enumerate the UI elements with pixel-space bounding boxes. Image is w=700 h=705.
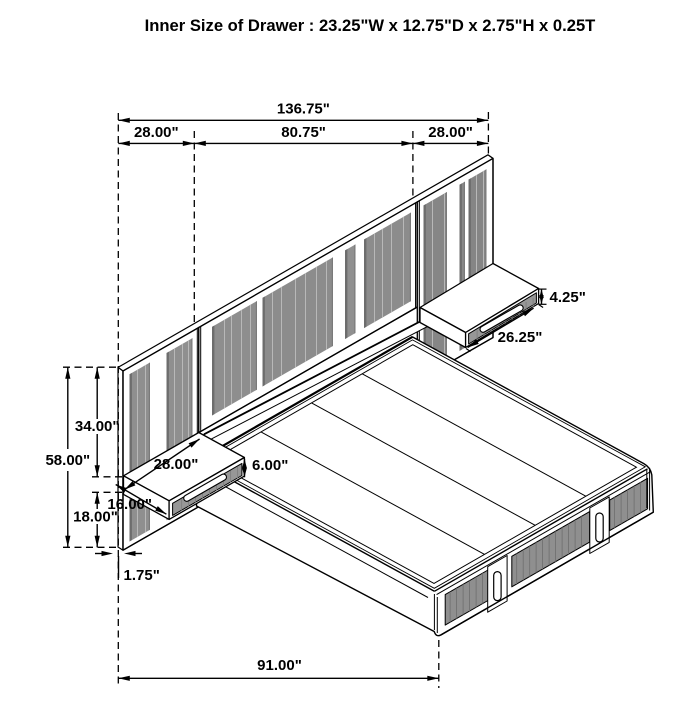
svg-text:28.00": 28.00" <box>428 124 473 141</box>
svg-text:16.00": 16.00" <box>107 496 152 513</box>
svg-text:26.25": 26.25" <box>498 329 543 346</box>
svg-text:136.75": 136.75" <box>277 101 330 118</box>
svg-text:6.00": 6.00" <box>252 457 288 474</box>
svg-text:34.00": 34.00" <box>75 418 120 435</box>
svg-text:Inner Size of Drawer : 23.25"W: Inner Size of Drawer : 23.25"W x 12.75"D… <box>145 16 596 35</box>
svg-text:1.75": 1.75" <box>124 567 160 584</box>
svg-text:58.00": 58.00" <box>45 452 90 469</box>
svg-text:28.00": 28.00" <box>154 456 199 473</box>
svg-text:4.25": 4.25" <box>550 289 586 306</box>
svg-text:28.00": 28.00" <box>134 124 179 141</box>
svg-text:91.00": 91.00" <box>257 657 302 674</box>
svg-text:80.75": 80.75" <box>281 124 326 141</box>
